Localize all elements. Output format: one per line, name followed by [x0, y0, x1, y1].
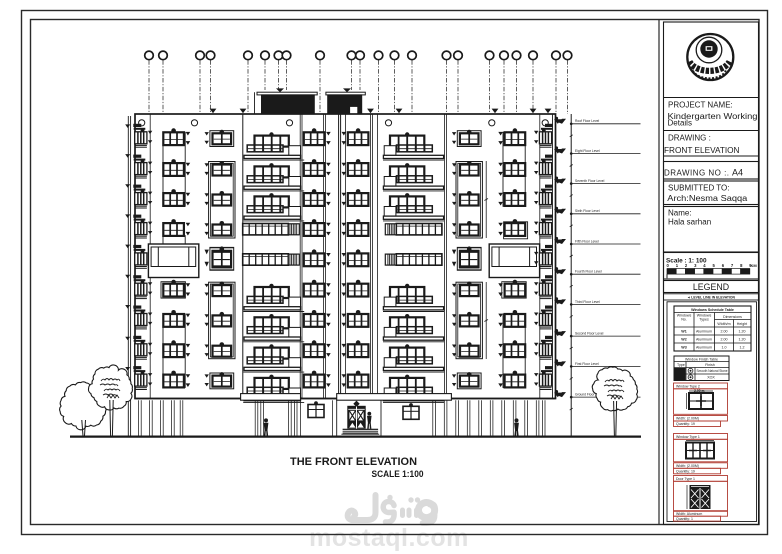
svg-text:Window Finish Table: Window Finish Table: [685, 357, 718, 361]
svg-text:Roof Floor Level: Roof Floor Level: [575, 119, 599, 123]
svg-text:Types: Types: [699, 318, 709, 322]
svg-text:Third Floor Level: Third Floor Level: [575, 300, 600, 304]
svg-text:PROJECT NAME:: PROJECT NAME:: [668, 101, 733, 110]
svg-text:Fifth Floor Level: Fifth Floor Level: [575, 239, 599, 243]
svg-text:Quantity: 1: Quantity: 1: [676, 517, 693, 521]
svg-text:Windows Schedule Table: Windows Schedule Table: [691, 308, 734, 312]
svg-text:W2: W2: [681, 338, 686, 342]
svg-text:THE FRONT ELEVATION: THE FRONT ELEVATION: [290, 456, 417, 468]
svg-text:Type: Type: [677, 363, 685, 367]
svg-text:Fourth Floor Level: Fourth Floor Level: [575, 270, 602, 274]
svg-text:Quantity: 19: Quantity: 19: [676, 470, 695, 474]
svg-text:Width: (2.00M): Width: (2.00M): [676, 464, 699, 468]
svg-text:◄ LEVEL LINE IN ELEVATION: ◄ LEVEL LINE IN ELEVATION: [687, 296, 736, 300]
svg-text:Finish: Finish: [705, 363, 715, 367]
svg-text:Seventh Floor Level: Seventh Floor Level: [575, 179, 605, 183]
svg-text:Details: Details: [668, 119, 692, 128]
svg-text:Quantity: 19: Quantity: 19: [676, 422, 695, 426]
svg-text:KM: KM: [751, 263, 758, 268]
svg-text:FRONT ELEVATION: FRONT ELEVATION: [664, 146, 740, 155]
svg-text:Aluminum: Aluminum: [696, 346, 712, 350]
svg-text:XOX: XOX: [707, 376, 715, 380]
svg-text:Window Type 1: Window Type 1: [676, 435, 700, 439]
svg-text:W3: W3: [681, 346, 686, 350]
svg-text:Hala sarhan: Hala sarhan: [668, 218, 711, 227]
svg-text:DRAWING :: DRAWING :: [668, 134, 711, 143]
svg-text:Sixth Floor Level: Sixth Floor Level: [575, 209, 600, 213]
svg-text:Height: Height: [737, 322, 747, 326]
svg-text:1.0: 1.0: [722, 346, 727, 350]
svg-text:Eight Floor Level: Eight Floor Level: [575, 149, 600, 153]
svg-text:Aluminum: Aluminum: [696, 330, 712, 334]
svg-text:2.00: 2.00: [721, 330, 728, 334]
svg-text:Width/m: Width/m: [717, 322, 730, 326]
svg-text:Second Floor Level: Second Floor Level: [575, 332, 604, 336]
svg-text:1.2: 1.2: [740, 346, 745, 350]
svg-text:Door Type 1: Door Type 1: [676, 477, 695, 481]
svg-text:1.20: 1.20: [739, 338, 746, 342]
svg-text:Dimensions: Dimensions: [723, 315, 742, 319]
svg-text:SCALE 1:100: SCALE 1:100: [372, 469, 424, 479]
svg-text:mostaql.com: mostaql.com: [309, 524, 469, 552]
svg-text:First Floor Level: First Floor Level: [575, 362, 599, 366]
svg-text:LEGEND: LEGEND: [693, 282, 729, 292]
svg-text:2.00 m: 2.00 m: [694, 389, 705, 393]
svg-text:Arch:Nesma Saqqa: Arch:Nesma Saqqa: [667, 194, 748, 203]
svg-text:DRAWING NO :.: DRAWING NO :.: [664, 168, 729, 177]
svg-text:Width: Aluminum: Width: Aluminum: [676, 512, 702, 516]
svg-text:Window Type 2: Window Type 2: [676, 384, 700, 388]
svg-text:1.20: 1.20: [739, 330, 746, 334]
svg-text:Aluminum: Aluminum: [696, 338, 712, 342]
svg-text:Smooth Natural Stone: Smooth Natural Stone: [697, 369, 728, 373]
svg-text:SUBMITTED TO:: SUBMITTED TO:: [668, 184, 730, 193]
svg-text:No.: No.: [681, 318, 687, 322]
svg-text:Width: (2.00M): Width: (2.00M): [676, 417, 699, 421]
svg-text:A4: A4: [732, 167, 743, 177]
svg-text:2.00: 2.00: [721, 338, 728, 342]
svg-text:W1: W1: [681, 330, 686, 334]
svg-text:Name:: Name:: [668, 209, 692, 218]
